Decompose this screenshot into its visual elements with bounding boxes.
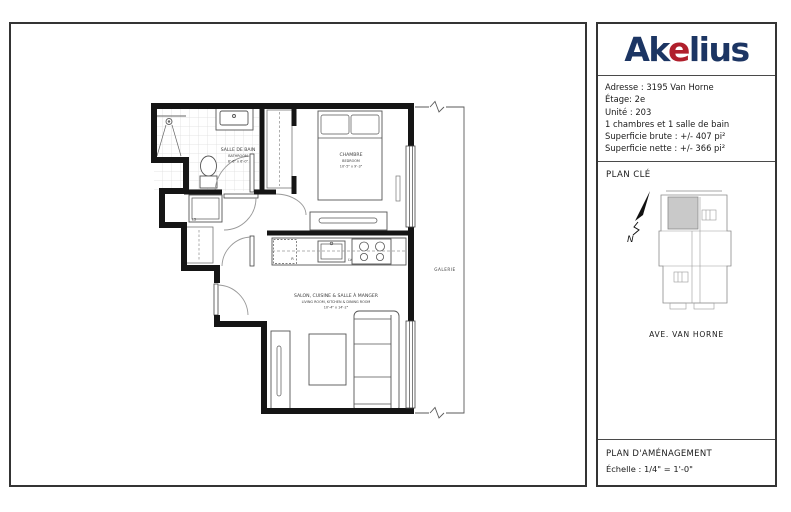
north-label: N (627, 235, 634, 245)
vanity-sink (216, 107, 253, 130)
info-address: Adresse : 3195 Van Horne (605, 81, 768, 93)
bathroom-label-dims: 8'-6" x 6'-0" (228, 160, 249, 164)
info-rooms: 1 chambres et 1 salle de bain (605, 118, 768, 130)
tv-console (271, 331, 290, 409)
title-block-panel: Akelius Adresse : 3195 Van Horne Étage: … (596, 22, 777, 487)
bedroom-window (406, 146, 415, 227)
page: { "colors": { "logo_navy": "#1c3563", "l… (0, 0, 791, 512)
key-plan-title: PLAN CLÉ (606, 170, 651, 180)
info-net-area: Superficie nette : +/- 366 pi² (605, 142, 768, 154)
logo-letter-e: e (668, 30, 689, 69)
logo-text-post: lius (689, 30, 749, 69)
bathroom-label-en: BATHROOM (228, 154, 248, 158)
info-unit: Unité : 203 (605, 106, 768, 118)
bedroom-label-en: BEDROOM (342, 159, 360, 163)
unit-info-box: Adresse : 3195 Van Horne Étage: 2e Unité… (598, 76, 775, 162)
balcony (415, 107, 464, 413)
balcony-break-mask-top (429, 101, 446, 112)
hall-closet (186, 227, 213, 263)
subject-unit-highlight (668, 197, 698, 229)
dresser (310, 212, 387, 230)
sofa (354, 311, 399, 412)
info-floor: Étage: 2e (605, 93, 768, 105)
bedroom-label-dims: 10'-5" x 9'-3" (340, 165, 363, 169)
dishwasher-label: LV (348, 258, 353, 262)
living-label-dims: 10'-4" x 14'-2" (324, 306, 349, 310)
key-plan-section: PLAN CLÉ N (598, 162, 775, 439)
street-label: AVE. VAN HORNE (598, 330, 775, 339)
north-arrow-icon: N (627, 191, 650, 245)
living-label-en: LIVING ROOM, KITCHEN & DINING ROOM (302, 300, 371, 304)
logo-text-pre: Ak (624, 30, 668, 69)
sheet-footer: PLAN D'AMÉNAGEMENT Échelle : 1/4" = 1'-0… (598, 439, 775, 485)
sheet-title: PLAN D'AMÉNAGEMENT (606, 449, 767, 459)
closet-door (222, 236, 254, 266)
info-gross-area: Superficie brute : +/- 407 pi² (605, 130, 768, 142)
sheet-scale: Échelle : 1/4" = 1'-0" (606, 464, 767, 474)
logo-box: Akelius (598, 24, 775, 76)
key-plan-building (659, 191, 731, 309)
living-label-fr: SALON, CUISINE & SALLE À MANGER (294, 292, 379, 299)
drawing-sheet: SALLE DE BAIN BATHROOM 8'-6" x 6'-0" CHA… (9, 22, 587, 487)
bathroom-label-fr: SALLE DE BAIN (221, 147, 256, 153)
balcony-label: GALERIE (434, 267, 455, 272)
bedroom-closet (267, 110, 292, 188)
hall-door (224, 194, 258, 230)
entry-door (214, 284, 248, 315)
bedroom-label-fr: CHAMBRE (339, 152, 362, 158)
balcony-break-mask-bottom (429, 407, 446, 418)
akelius-logo: Akelius (624, 33, 748, 66)
living-window (406, 321, 415, 408)
toilet (200, 156, 217, 188)
washer-label: LS (192, 217, 197, 222)
floor-plan-svg: SALLE DE BAIN BATHROOM 8'-6" x 6'-0" CHA… (11, 24, 585, 485)
key-plan-svg: N (626, 184, 746, 324)
bedroom-door-arc (275, 194, 306, 215)
baseboard-heater (396, 176, 400, 201)
coffee-table (309, 334, 346, 385)
